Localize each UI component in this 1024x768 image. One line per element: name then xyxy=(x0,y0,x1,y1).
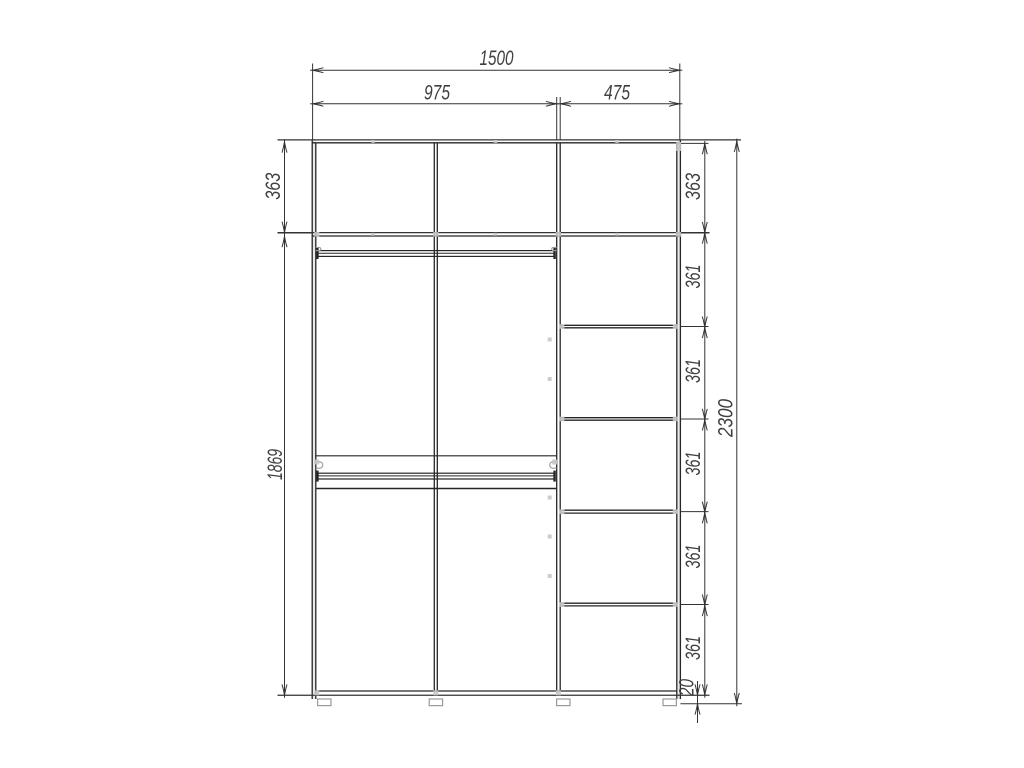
svg-text:975: 975 xyxy=(424,82,450,105)
svg-text:1869: 1869 xyxy=(264,449,287,480)
svg-text:2300: 2300 xyxy=(715,399,738,438)
svg-text:1500: 1500 xyxy=(480,47,514,70)
svg-text:361: 361 xyxy=(682,545,705,569)
svg-text:361: 361 xyxy=(682,265,705,289)
svg-text:363: 363 xyxy=(682,173,705,200)
svg-text:361: 361 xyxy=(682,636,705,660)
svg-text:363: 363 xyxy=(262,173,285,200)
svg-text:20: 20 xyxy=(676,679,699,697)
svg-text:361: 361 xyxy=(682,452,705,476)
svg-text:475: 475 xyxy=(604,82,630,105)
svg-text:361: 361 xyxy=(682,359,705,383)
